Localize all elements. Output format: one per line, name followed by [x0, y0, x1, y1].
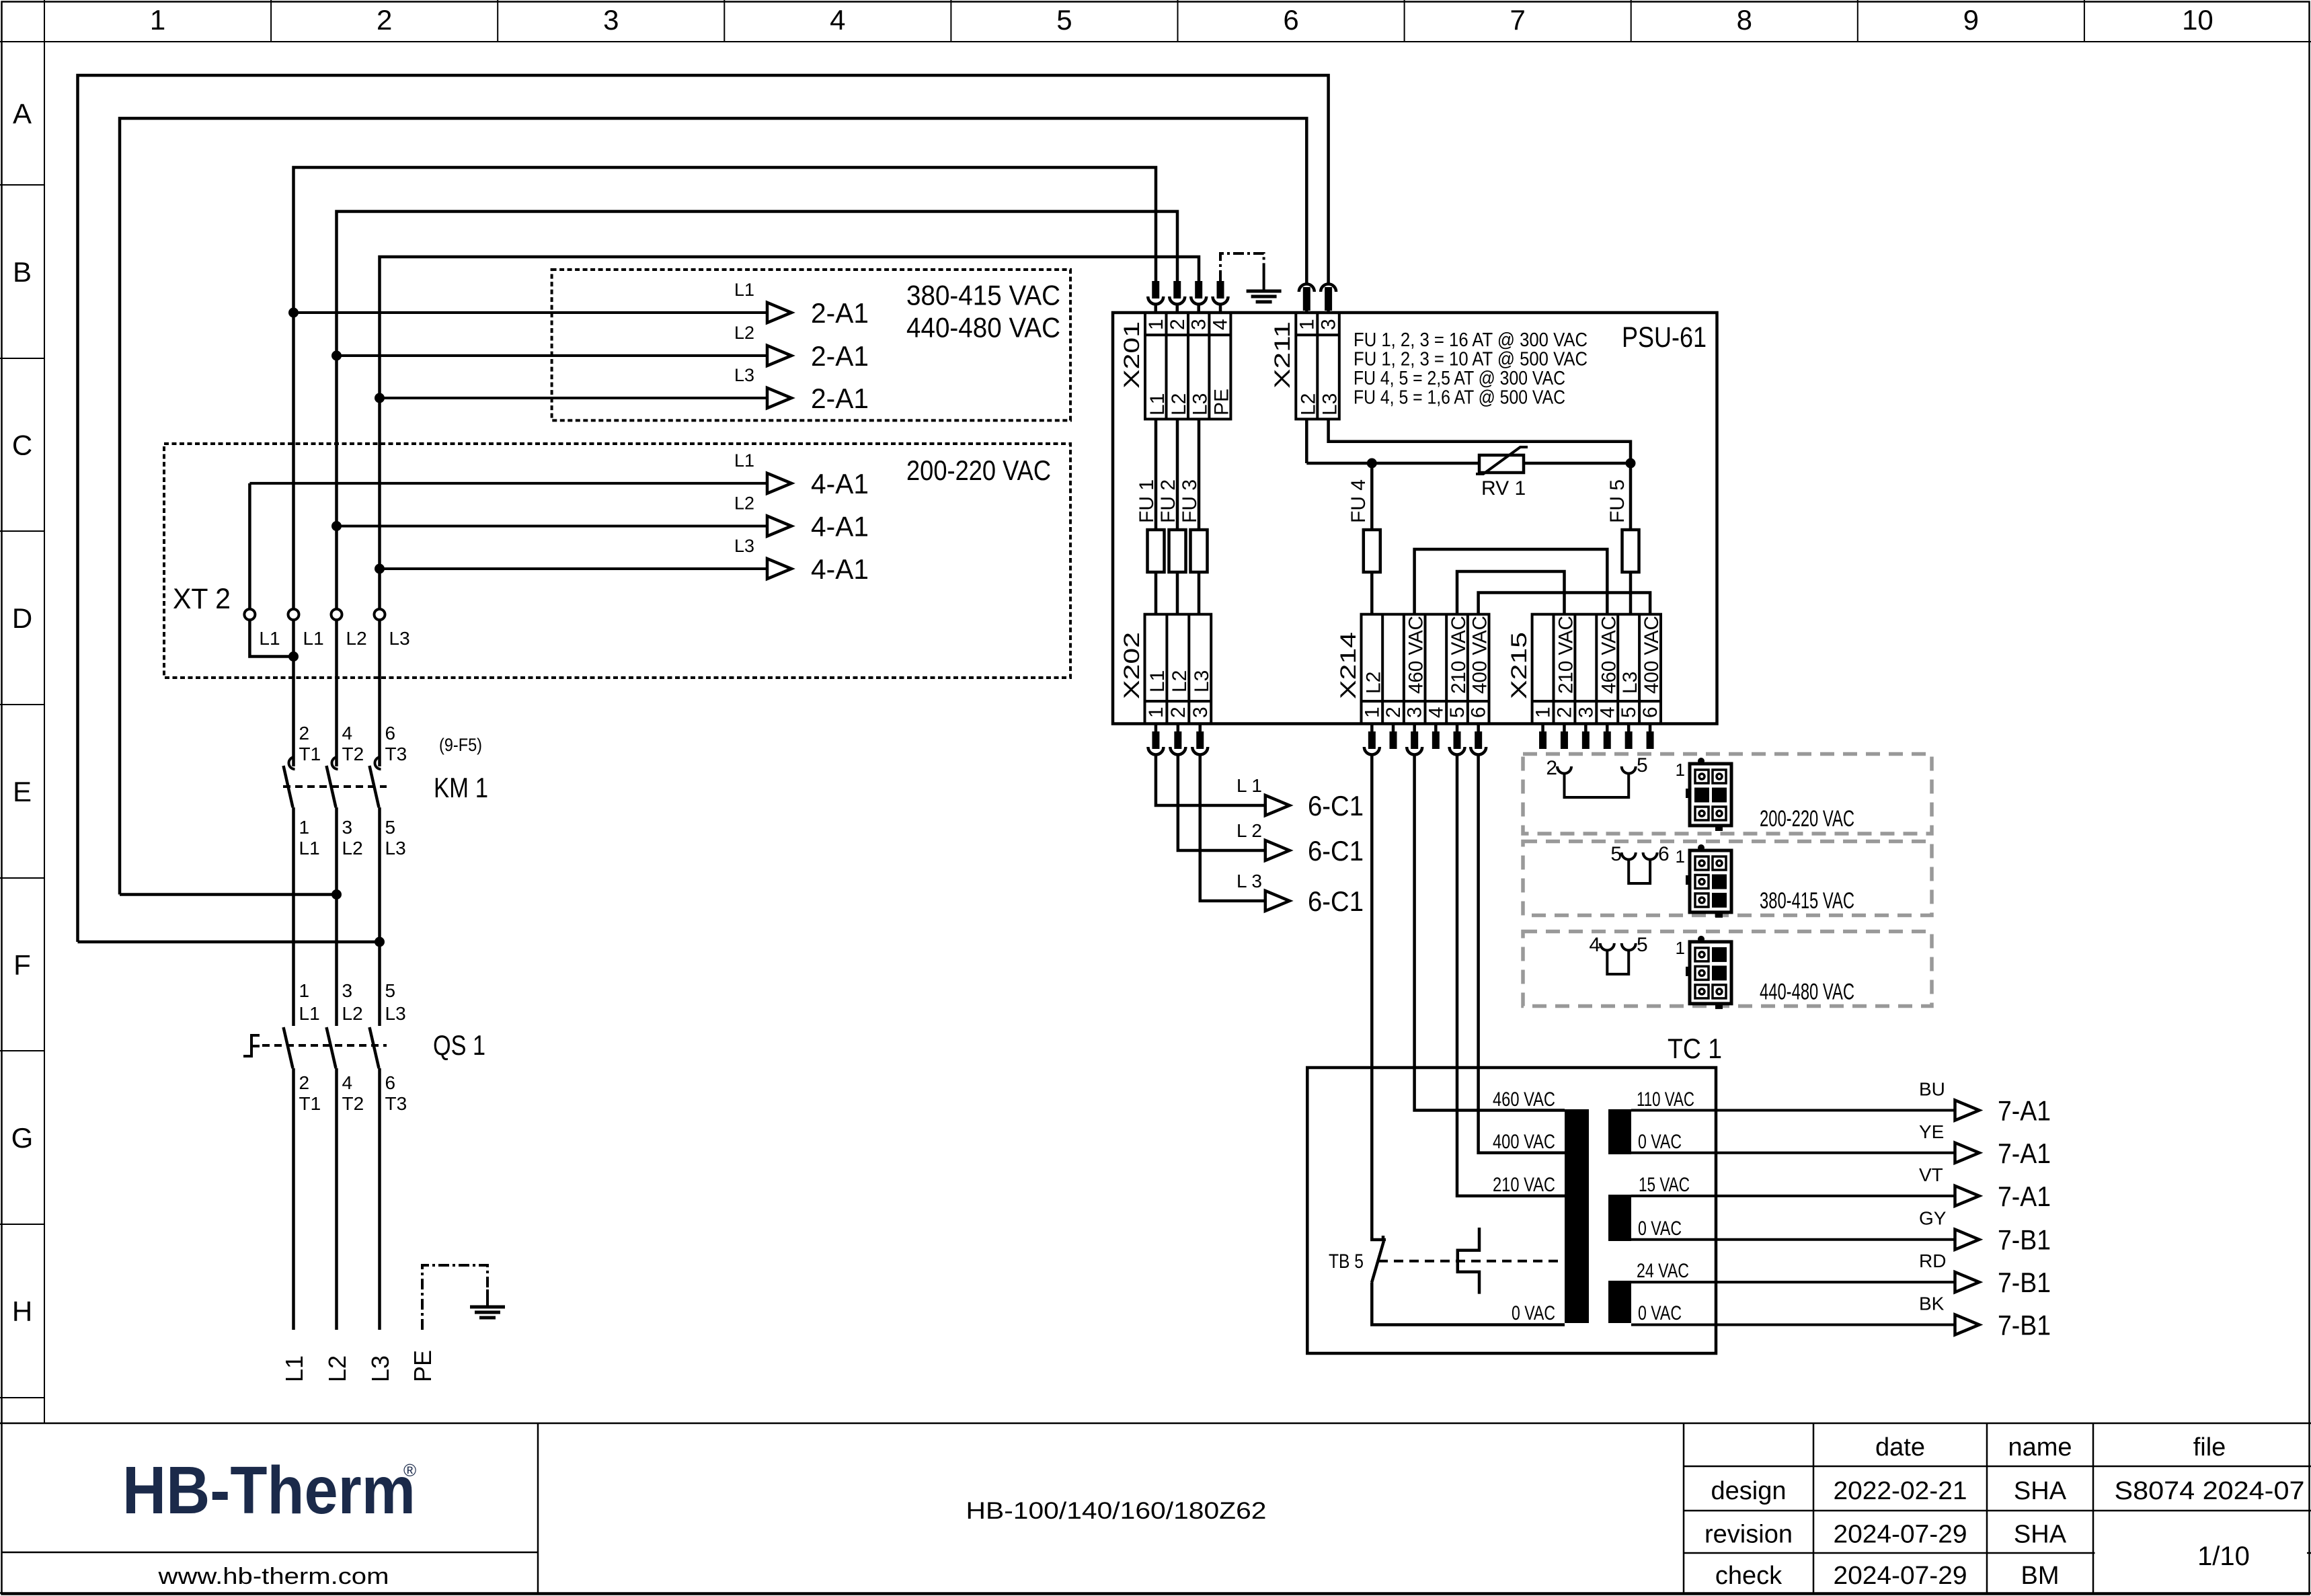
svg-text:2: 2	[377, 4, 392, 36]
svg-text:7-A1: 7-A1	[1998, 1095, 2051, 1127]
svg-text:0 VAC: 0 VAC	[1638, 1302, 1682, 1324]
svg-text:5: 5	[1637, 754, 1648, 776]
svg-text:FU 4: FU 4	[1347, 479, 1370, 523]
svg-text:HB-Therm: HB-Therm	[122, 1453, 416, 1528]
svg-text:1: 1	[1361, 707, 1383, 718]
svg-text:®: ®	[403, 1460, 416, 1480]
svg-text:FU 2: FU 2	[1157, 479, 1179, 523]
svg-text:L2: L2	[1362, 672, 1384, 694]
svg-text:L3: L3	[1319, 393, 1341, 415]
svg-text:FU 4, 5 = 1,6 AT @ 500 VAC: FU 4, 5 = 1,6 AT @ 500 VAC	[1354, 387, 1565, 409]
svg-text:L2: L2	[1168, 393, 1190, 415]
svg-text:L2: L2	[1169, 670, 1191, 692]
svg-text:X214: X214	[1336, 632, 1360, 699]
svg-text:6-C1: 6-C1	[1308, 835, 1364, 867]
svg-text:BM: BM	[2021, 1562, 2060, 1590]
svg-text:5: 5	[1618, 707, 1640, 718]
svg-text:BU: BU	[1919, 1079, 1945, 1100]
svg-text:X202: X202	[1120, 632, 1144, 699]
svg-text:L3: L3	[1189, 393, 1212, 415]
svg-text:2-A1: 2-A1	[811, 297, 869, 329]
svg-text:L3: L3	[385, 1003, 406, 1024]
svg-text:5: 5	[1637, 934, 1648, 956]
svg-text:440-480 VAC: 440-480 VAC	[1760, 980, 1854, 1005]
svg-text:PE: PE	[1210, 389, 1232, 415]
svg-text:6: 6	[385, 723, 396, 744]
svg-text:C: C	[12, 430, 32, 461]
svg-text:7-B1: 7-B1	[1998, 1310, 2051, 1341]
svg-text:6: 6	[1639, 707, 1661, 718]
svg-text:2-A1: 2-A1	[811, 383, 869, 414]
svg-text:RV 1: RV 1	[1481, 477, 1526, 500]
svg-text:3: 3	[342, 980, 353, 1001]
svg-text:H: H	[12, 1295, 32, 1327]
svg-text:6-C1: 6-C1	[1308, 885, 1364, 917]
svg-text:380-415 VAC: 380-415 VAC	[1760, 888, 1854, 914]
svg-text:file: file	[2193, 1433, 2226, 1462]
svg-text:XT 2: XT 2	[173, 583, 231, 615]
svg-text:400 VAC: 400 VAC	[1493, 1131, 1555, 1153]
svg-text:0 VAC: 0 VAC	[1512, 1302, 1555, 1324]
svg-text:date: date	[1875, 1433, 1925, 1462]
svg-text:L1: L1	[734, 280, 754, 300]
svg-text:3: 3	[603, 4, 619, 36]
svg-text:name: name	[2008, 1433, 2072, 1462]
svg-text:4: 4	[1589, 934, 1600, 956]
svg-text:RD: RD	[1919, 1250, 1946, 1271]
svg-text:L2: L2	[323, 1355, 351, 1382]
svg-text:SHA: SHA	[2014, 1477, 2067, 1505]
svg-text:QS 1: QS 1	[433, 1029, 485, 1061]
svg-text:YE: YE	[1919, 1121, 1944, 1142]
svg-text:FU 1, 2, 3 = 16 AT @ 300 V: FU 1, 2, 3 = 16 AT @ 300 VAC	[1354, 329, 1588, 351]
svg-text:210 VAC: 210 VAC	[1555, 616, 1577, 694]
svg-text:FU 5: FU 5	[1606, 479, 1629, 523]
svg-text:1: 1	[1676, 760, 1685, 780]
svg-text:1: 1	[299, 980, 310, 1001]
svg-text:L2: L2	[734, 323, 754, 343]
svg-text:X215: X215	[1507, 632, 1531, 699]
svg-text:4-A1: 4-A1	[811, 511, 869, 543]
svg-text:L1: L1	[1146, 393, 1169, 415]
svg-text:T3: T3	[385, 744, 407, 764]
svg-text:6: 6	[1283, 4, 1298, 36]
svg-text:3: 3	[1189, 707, 1212, 718]
svg-text:L3: L3	[366, 1355, 394, 1382]
svg-text:210 VAC: 210 VAC	[1448, 616, 1470, 694]
svg-text:24 VAC: 24 VAC	[1637, 1260, 1689, 1282]
svg-text:G: G	[11, 1122, 34, 1154]
svg-text:0 VAC: 0 VAC	[1638, 1131, 1682, 1153]
svg-text:L1: L1	[299, 838, 320, 859]
svg-text:3: 3	[1404, 707, 1426, 718]
svg-text:KM 1: KM 1	[434, 772, 488, 803]
svg-text:L 3: L 3	[1237, 871, 1262, 891]
svg-text:1/10: 1/10	[2197, 1542, 2250, 1571]
svg-text:1: 1	[1145, 319, 1167, 330]
svg-text:2: 2	[1553, 707, 1575, 718]
svg-text:L1: L1	[280, 1355, 308, 1382]
svg-text:T2: T2	[342, 744, 364, 764]
svg-text:460 VAC: 460 VAC	[1405, 616, 1427, 694]
svg-text:X211: X211	[1270, 321, 1294, 389]
svg-text:TB 5: TB 5	[1329, 1250, 1364, 1273]
svg-text:4-A1: 4-A1	[811, 553, 869, 585]
svg-text:6-C1: 6-C1	[1308, 790, 1364, 822]
svg-text:L3: L3	[1619, 672, 1641, 694]
svg-text:HB-100/140/160/180Z62: HB-100/140/160/180Z62	[966, 1498, 1267, 1524]
svg-text:L1: L1	[259, 628, 280, 649]
svg-text:6: 6	[385, 1072, 396, 1093]
svg-text:5: 5	[1610, 843, 1622, 865]
svg-text:www.hb-therm.com: www.hb-therm.com	[157, 1564, 389, 1589]
svg-text:check: check	[1715, 1562, 1783, 1590]
svg-text:design: design	[1711, 1477, 1787, 1505]
svg-text:2024-07-29: 2024-07-29	[1834, 1521, 1967, 1549]
svg-text:T2: T2	[342, 1093, 364, 1114]
svg-text:L3: L3	[734, 536, 754, 556]
svg-text:15 VAC: 15 VAC	[1639, 1174, 1690, 1196]
svg-text:GY: GY	[1919, 1208, 1947, 1229]
svg-text:10: 10	[2182, 4, 2214, 36]
svg-text:210 VAC: 210 VAC	[1493, 1174, 1555, 1196]
svg-text:B: B	[13, 256, 32, 288]
svg-text:2: 2	[299, 723, 310, 744]
svg-text:4: 4	[1209, 319, 1231, 330]
svg-text:4: 4	[1596, 707, 1618, 718]
svg-text:7-A1: 7-A1	[1998, 1138, 2051, 1169]
svg-text:5: 5	[1056, 4, 1072, 36]
svg-text:SHA: SHA	[2014, 1521, 2067, 1549]
svg-text:200-220 VAC: 200-220 VAC	[906, 454, 1051, 486]
svg-text:VT: VT	[1919, 1164, 1943, 1185]
svg-text:L2: L2	[342, 1003, 363, 1024]
svg-text:1: 1	[299, 817, 310, 838]
svg-text:L3: L3	[389, 628, 410, 649]
svg-text:L3: L3	[1191, 670, 1213, 692]
svg-text:BK: BK	[1919, 1293, 1945, 1314]
svg-text:6: 6	[1658, 843, 1670, 865]
svg-text:T3: T3	[385, 1093, 407, 1114]
svg-text:FU 3: FU 3	[1179, 479, 1201, 523]
svg-text:4: 4	[830, 4, 845, 36]
svg-text:2: 2	[1167, 319, 1189, 330]
svg-text:L2: L2	[734, 493, 754, 514]
svg-text:380-415 VAC: 380-415 VAC	[906, 280, 1060, 311]
svg-text:2: 2	[1167, 707, 1189, 718]
svg-text:A: A	[13, 98, 32, 130]
svg-text:110 VAC: 110 VAC	[1637, 1088, 1694, 1111]
svg-text:4: 4	[1425, 707, 1447, 718]
svg-text:6: 6	[1468, 707, 1490, 718]
svg-text:5: 5	[385, 980, 396, 1001]
svg-text:PSU-61: PSU-61	[1622, 321, 1707, 354]
svg-text:1: 1	[1676, 938, 1685, 958]
svg-text:L1: L1	[1146, 670, 1169, 692]
svg-text:7-B1: 7-B1	[1998, 1224, 2051, 1256]
svg-text:2: 2	[1546, 757, 1557, 779]
svg-text:460 VAC: 460 VAC	[1598, 616, 1620, 694]
svg-text:7: 7	[1510, 4, 1525, 36]
svg-text:T1: T1	[299, 744, 321, 764]
svg-text:PE: PE	[409, 1350, 436, 1382]
svg-text:4: 4	[342, 1072, 353, 1093]
svg-text:D: D	[12, 602, 32, 634]
svg-text:3: 3	[342, 817, 353, 838]
svg-text:4-A1: 4-A1	[811, 468, 869, 500]
svg-text:X201: X201	[1120, 321, 1144, 389]
svg-text:1: 1	[1296, 319, 1318, 330]
svg-text:2: 2	[299, 1072, 310, 1093]
svg-text:L3: L3	[385, 838, 406, 859]
svg-text:1: 1	[1145, 707, 1167, 718]
svg-text:400 VAC: 400 VAC	[1469, 616, 1491, 694]
svg-text:F: F	[13, 949, 31, 981]
svg-text:440-480 VAC: 440-480 VAC	[906, 312, 1060, 344]
svg-text:1: 1	[1532, 707, 1555, 718]
svg-text:3: 3	[1575, 707, 1597, 718]
svg-text:3: 3	[1188, 319, 1210, 330]
svg-text:FU 4, 5 = 2,5 AT @ 300 VAC: FU 4, 5 = 2,5 AT @ 300 VAC	[1354, 368, 1565, 389]
svg-text:2: 2	[1382, 707, 1405, 718]
svg-text:5: 5	[385, 817, 396, 838]
svg-text:8: 8	[1737, 4, 1752, 36]
svg-text:4: 4	[342, 723, 353, 744]
svg-text:7-A1: 7-A1	[1998, 1181, 2051, 1212]
svg-text:(9-F5): (9-F5)	[439, 735, 482, 755]
svg-text:400 VAC: 400 VAC	[1641, 616, 1663, 694]
svg-text:TC 1: TC 1	[1668, 1033, 1722, 1064]
svg-text:1: 1	[1676, 846, 1685, 867]
svg-text:L2: L2	[1297, 393, 1319, 415]
svg-text:200-220 VAC: 200-220 VAC	[1760, 806, 1854, 832]
svg-text:3: 3	[1318, 319, 1340, 330]
svg-text:L1: L1	[734, 450, 754, 471]
svg-text:FU 1, 2, 3 = 10 AT @ 500 V: FU 1, 2, 3 = 10 AT @ 500 VAC	[1354, 349, 1588, 370]
svg-text:L1: L1	[303, 628, 324, 649]
svg-text:2024-07-29: 2024-07-29	[1834, 1562, 1967, 1590]
svg-text:1: 1	[150, 4, 165, 36]
svg-text:L1: L1	[299, 1003, 320, 1024]
svg-text:L3: L3	[734, 365, 754, 385]
svg-text:L2: L2	[342, 838, 363, 859]
svg-text:revision: revision	[1705, 1521, 1793, 1549]
svg-text:2-A1: 2-A1	[811, 340, 869, 372]
svg-text:E: E	[13, 776, 32, 807]
svg-text:L 2: L 2	[1237, 820, 1262, 841]
svg-text:5: 5	[1446, 707, 1468, 718]
svg-text:L2: L2	[346, 628, 367, 649]
svg-text:9: 9	[1963, 4, 1979, 36]
svg-text:S8074 2024-07: S8074 2024-07	[2115, 1477, 2305, 1505]
svg-text:L 1: L 1	[1237, 775, 1262, 796]
svg-text:FU 1: FU 1	[1136, 479, 1158, 523]
svg-text:2022-02-21: 2022-02-21	[1834, 1477, 1967, 1505]
svg-text:T1: T1	[299, 1093, 321, 1114]
svg-text:460 VAC: 460 VAC	[1493, 1088, 1555, 1111]
svg-text:0 VAC: 0 VAC	[1638, 1218, 1682, 1240]
svg-text:7-B1: 7-B1	[1998, 1267, 2051, 1298]
